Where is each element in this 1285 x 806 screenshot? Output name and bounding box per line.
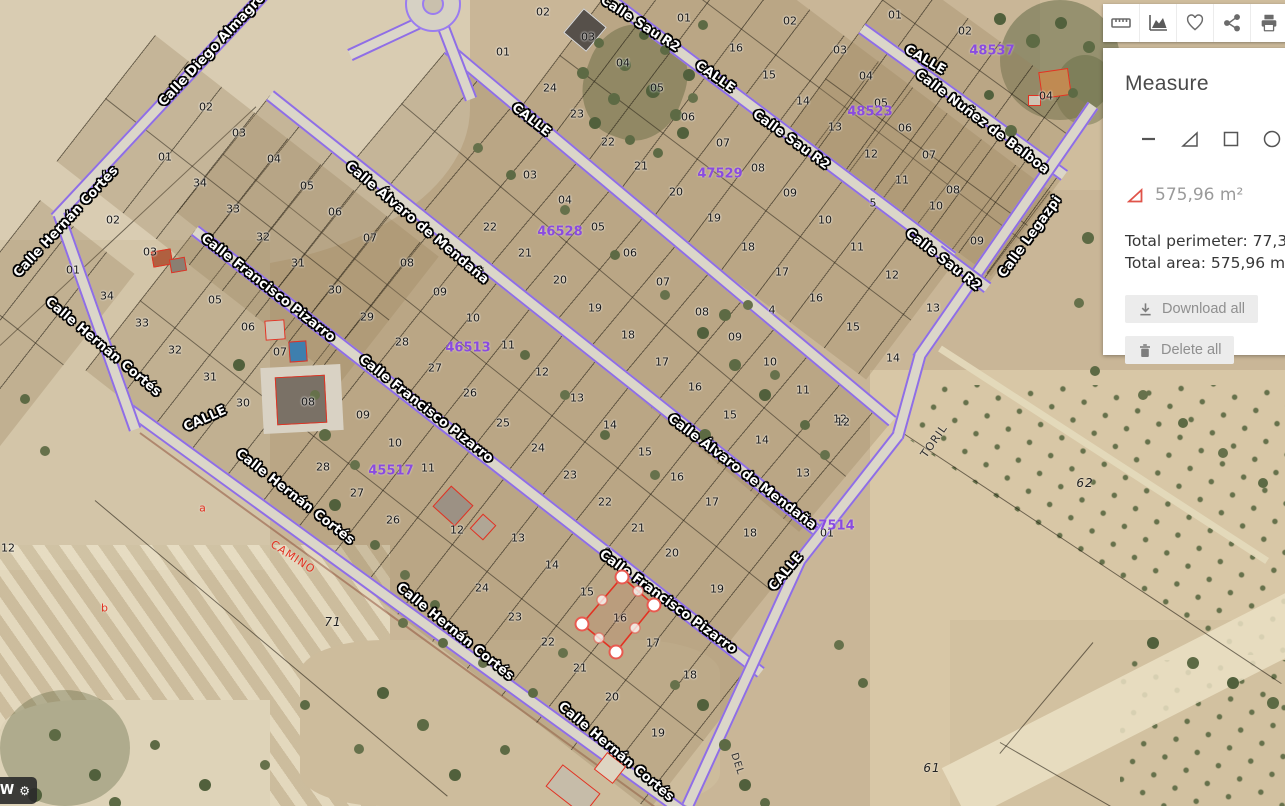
circle-tool-icon[interactable] xyxy=(1262,129,1282,149)
street-name-label: Calle Francisco Pizarro xyxy=(356,352,496,466)
delete-all-button[interactable]: Delete all xyxy=(1125,336,1234,364)
gear-icon[interactable]: ⚙ xyxy=(19,784,30,798)
street-name-label: Calle Legazpi xyxy=(995,193,1064,280)
vertex-handle[interactable] xyxy=(610,646,623,659)
total-perimeter: Total perimeter: 77,37 xyxy=(1125,230,1285,252)
street-name-label: Calle Nuñez de Balboa xyxy=(912,67,1052,177)
print-icon[interactable] xyxy=(1251,4,1285,42)
midpoint-handle[interactable] xyxy=(633,586,643,596)
download-icon xyxy=(1138,302,1153,317)
street-name-label: Calle Francisco Pizarro xyxy=(198,231,338,345)
area-result-value: 575,96 m² xyxy=(1155,185,1243,205)
midpoint-handle[interactable] xyxy=(597,595,607,605)
map-toolbar xyxy=(1103,4,1285,42)
street-name-label: CALLE xyxy=(509,100,554,140)
favorites-heart-icon[interactable] xyxy=(1177,4,1214,42)
watermark-text: W xyxy=(0,783,14,798)
street-name-label: Calle Hernán Cortés xyxy=(393,580,516,684)
street-name-label: Calle Hernán Cortés xyxy=(42,294,164,399)
street-name-label: CALLE xyxy=(181,403,228,435)
midpoint-handle[interactable] xyxy=(594,633,604,643)
street-label-layer: Calle Diego AlmagroCalle Hernán CortésCa… xyxy=(0,0,1285,806)
elevation-chart-icon[interactable] xyxy=(1140,4,1177,42)
map-viewport[interactable]: 0203040506070809101112131415161718190134… xyxy=(0,0,1285,806)
map-watermark-badge[interactable]: W ⚙ xyxy=(0,777,37,804)
ruler-icon[interactable] xyxy=(1103,4,1140,42)
street-name-label: CALLE xyxy=(766,550,806,594)
measurement-polygon[interactable] xyxy=(555,550,685,680)
download-all-button[interactable]: Download all xyxy=(1125,295,1258,323)
street-name-label: Calle Álvaro de Mendaña xyxy=(665,411,819,532)
area-tool-icon[interactable] xyxy=(1180,129,1200,149)
street-name-label: Calle Sau R2 xyxy=(598,0,683,55)
street-name-label: Calle Hernán Cortés xyxy=(555,699,677,804)
street-name-label: Calle Hernán Cortés xyxy=(11,163,122,280)
measure-panel: Measure 575,96 m² Total perimeter: 77,37… xyxy=(1103,48,1285,355)
street-name-label: Calle Sau R2 xyxy=(902,226,983,294)
midpoint-handle[interactable] xyxy=(630,623,640,633)
vertex-handle[interactable] xyxy=(576,618,589,631)
trash-icon xyxy=(1138,343,1152,358)
street-name-label: Calle Sau R2 xyxy=(750,107,833,173)
panel-title: Measure xyxy=(1125,72,1285,96)
street-name-label: Calle Álvaro de Mendaña xyxy=(342,159,491,287)
measure-tools xyxy=(1139,129,1285,149)
measurement-result-row[interactable]: 575,96 m² xyxy=(1127,185,1285,205)
street-name-label: Calle Diego Almagro xyxy=(156,0,269,110)
share-icon[interactable] xyxy=(1214,4,1251,42)
vertex-handle[interactable] xyxy=(648,599,661,612)
street-name-label: CALLE xyxy=(692,58,738,96)
vertex-handle[interactable] xyxy=(616,571,629,584)
measurement-totals: Total perimeter: 77,37 Total area: 575,9… xyxy=(1125,230,1285,274)
total-area: Total area: 575,96 m² xyxy=(1125,252,1285,274)
rectangle-tool-icon[interactable] xyxy=(1221,129,1241,149)
area-result-icon xyxy=(1127,187,1144,204)
street-name-label: Calle Hernán Cortés xyxy=(233,446,357,548)
line-tool-icon[interactable] xyxy=(1139,129,1159,149)
